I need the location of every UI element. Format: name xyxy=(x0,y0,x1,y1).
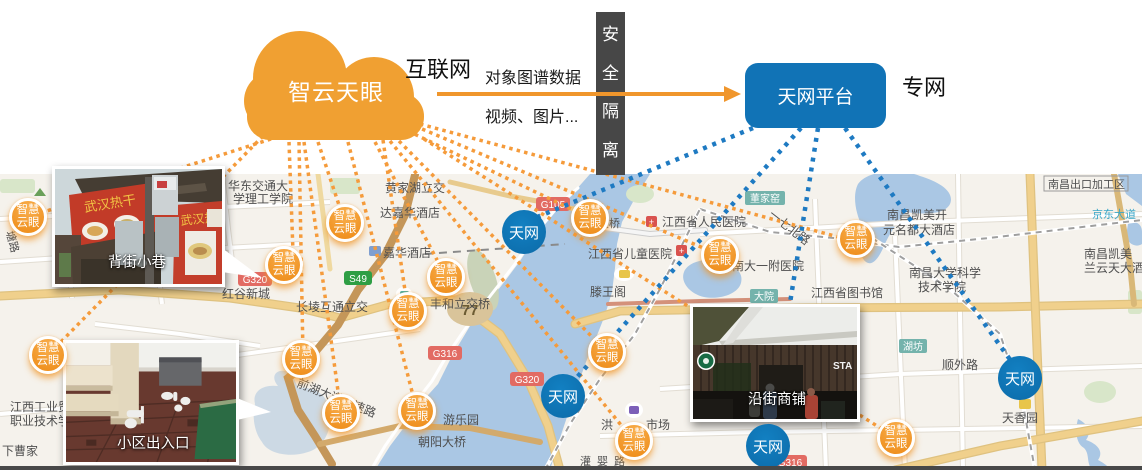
svg-text:STA: STA xyxy=(833,361,852,372)
svg-text:智云天眼: 智云天眼 xyxy=(288,79,384,105)
